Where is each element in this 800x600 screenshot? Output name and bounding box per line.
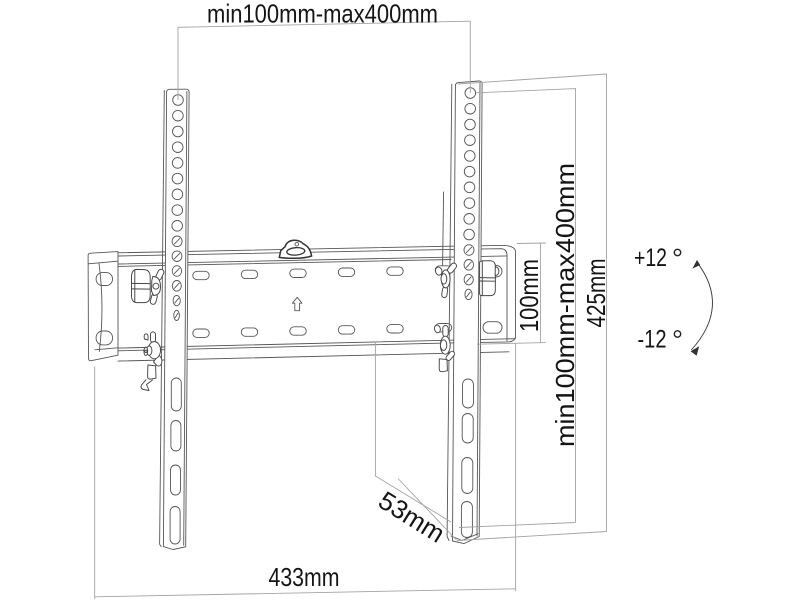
svg-text:-12: -12 [638,326,667,354]
svg-text:425mm: 425mm [581,259,611,328]
svg-text:+12: +12 [634,244,667,272]
svg-text:433mm: 433mm [269,562,340,592]
svg-text:100mm: 100mm [514,259,544,332]
svg-text:min100mm-max400mm: min100mm-max400mm [207,0,438,29]
svg-text:min100mm-max400mm: min100mm-max400mm [550,163,580,447]
